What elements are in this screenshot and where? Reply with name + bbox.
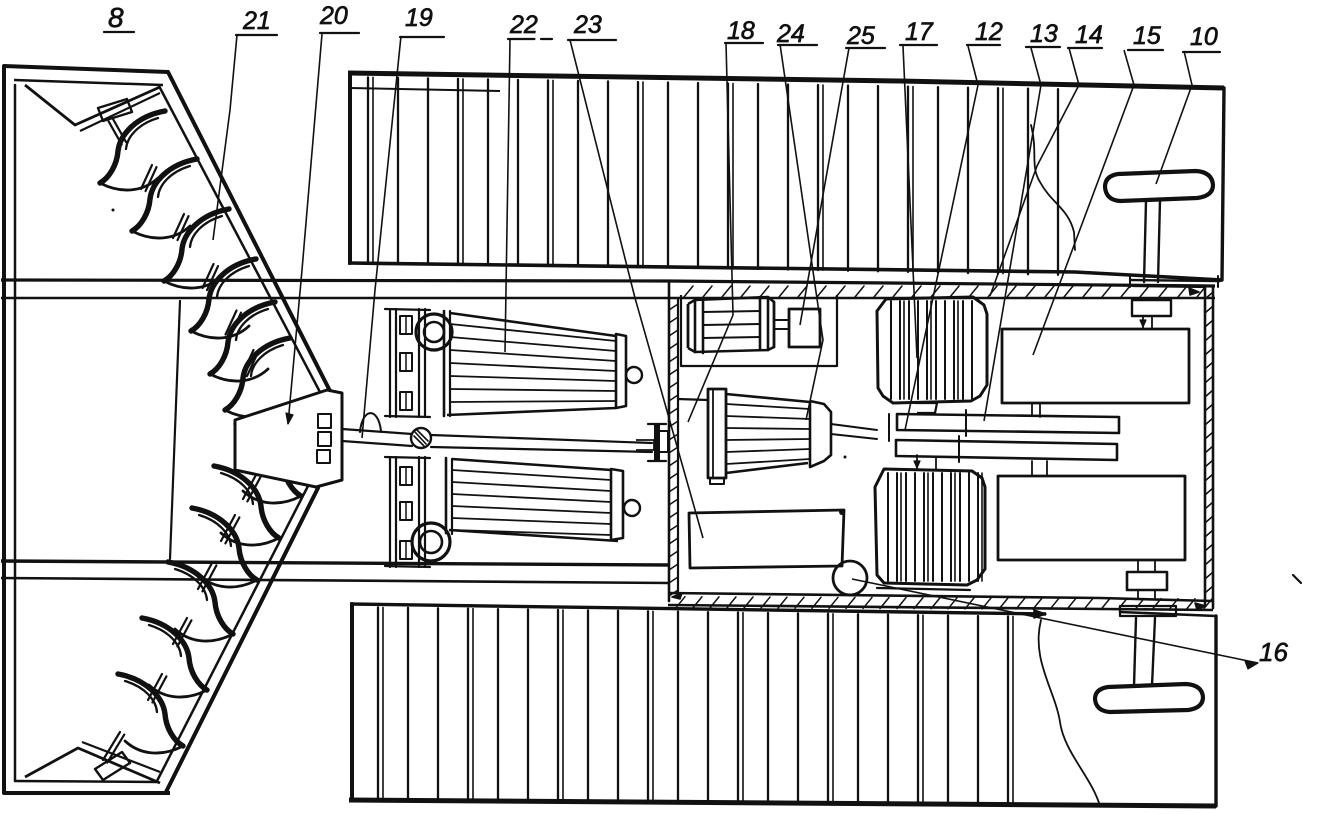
svg-text:15: 15 bbox=[1133, 22, 1161, 50]
svg-text:16: 16 bbox=[1259, 637, 1288, 667]
svg-text:18: 18 bbox=[727, 17, 755, 45]
svg-text:20: 20 bbox=[319, 2, 348, 30]
svg-text:21: 21 bbox=[242, 7, 271, 35]
svg-text:25: 25 bbox=[846, 22, 875, 50]
svg-text:19: 19 bbox=[405, 4, 433, 32]
svg-text:24: 24 bbox=[776, 20, 805, 48]
svg-text:14: 14 bbox=[1075, 21, 1103, 49]
svg-text:8: 8 bbox=[108, 2, 124, 33]
svg-text:10: 10 bbox=[1190, 23, 1218, 51]
svg-text:13: 13 bbox=[1030, 20, 1058, 48]
svg-text:22: 22 bbox=[509, 11, 538, 39]
svg-text:12: 12 bbox=[975, 18, 1003, 46]
svg-text:17: 17 bbox=[905, 18, 934, 46]
svg-text:23: 23 bbox=[573, 11, 602, 39]
